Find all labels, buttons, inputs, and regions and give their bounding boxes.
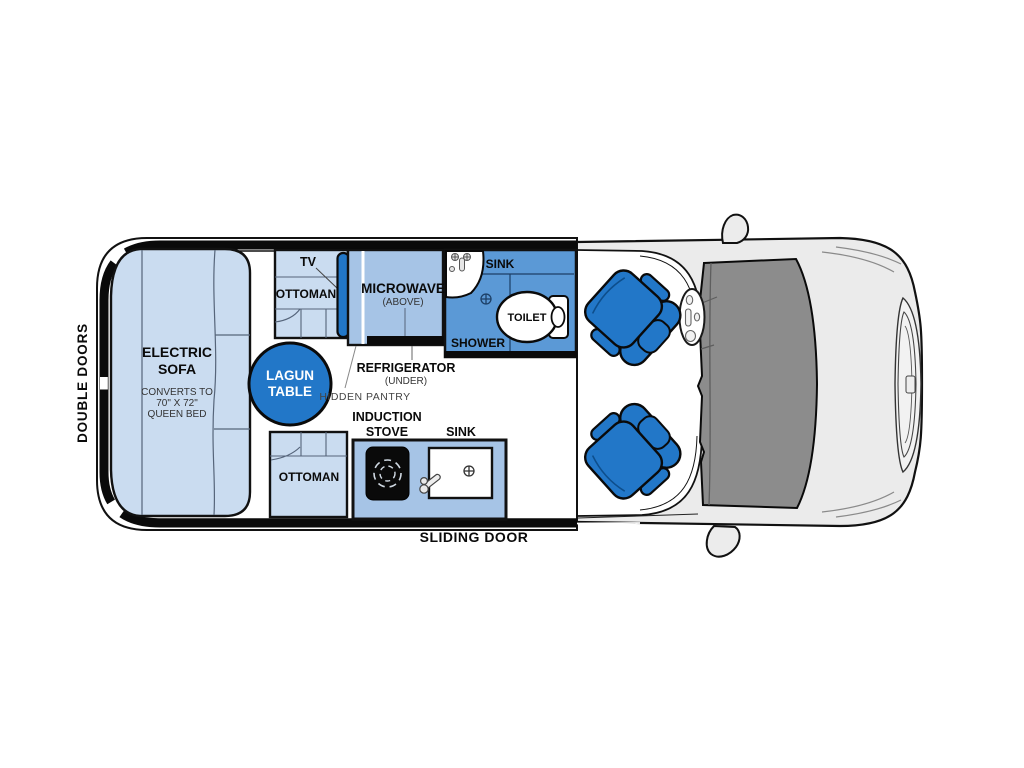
kitchen-sink-basin [429, 448, 492, 498]
side-mirror-bottom [707, 526, 740, 557]
side-mirror-top [722, 215, 748, 243]
microwave-note: (ABOVE) [382, 297, 423, 308]
steering-wheel [680, 289, 705, 345]
windshield [698, 259, 817, 508]
microwave-label: MICROWAVE [361, 281, 445, 296]
shower-drain [481, 294, 491, 304]
refrigerator-label: REFRIGERATOR [357, 361, 456, 375]
stove-label-1: INDUCTION [352, 410, 421, 424]
counter-edge [367, 336, 444, 345]
rear-ottoman-label: OTTOMAN [276, 287, 336, 301]
kitchen-counter [353, 440, 506, 519]
hidden-pantry-label: HIDDEN PANTRY [319, 391, 410, 403]
lagun-table-label-2: TABLE [268, 384, 312, 399]
sink-drain [464, 466, 474, 476]
tv-label: TV [300, 255, 317, 269]
cab-body [577, 215, 922, 557]
front-ottoman-label: OTTOMAN [279, 470, 339, 484]
bathroom-bottom-wall [444, 351, 577, 358]
double-doors-label: DOUBLE DOORS [75, 323, 90, 443]
sofa-label-1: ELECTRIC [142, 344, 212, 360]
rear-door-handle-notch [100, 377, 108, 390]
sofa-body [111, 249, 250, 516]
shower-label: SHOWER [451, 336, 505, 350]
bath-sink-label: SINK [486, 257, 515, 271]
kitchen-sink-label: SINK [446, 425, 476, 439]
lagun-table-label-1: LAGUN [266, 368, 314, 383]
sofa-note-3: QUEEN BED [148, 409, 207, 420]
sliding-door-label: SLIDING DOOR [420, 529, 529, 545]
induction-stove [366, 447, 409, 500]
sofa-note-2: 70" X 72" [156, 398, 198, 409]
refrigerator-note: (UNDER) [385, 376, 427, 387]
sliding-door-seam [577, 523, 640, 524]
sofa-note-1: CONVERTS TO [141, 387, 213, 398]
sofa-label-2: SOFA [158, 361, 196, 377]
stove-label-2: STOVE [366, 425, 408, 439]
toilet-flush [552, 307, 565, 327]
toilet-label: TOILET [508, 312, 547, 324]
electric-sofa [111, 249, 250, 516]
rv-floorplan-svg: DOUBLE DOORS SLIDING DOOR ELECTRIC SOFA … [0, 0, 1024, 768]
floorplan-canvas: DOUBLE DOORS SLIDING DOOR ELECTRIC SOFA … [0, 0, 1024, 768]
grille-emblem [906, 376, 915, 393]
